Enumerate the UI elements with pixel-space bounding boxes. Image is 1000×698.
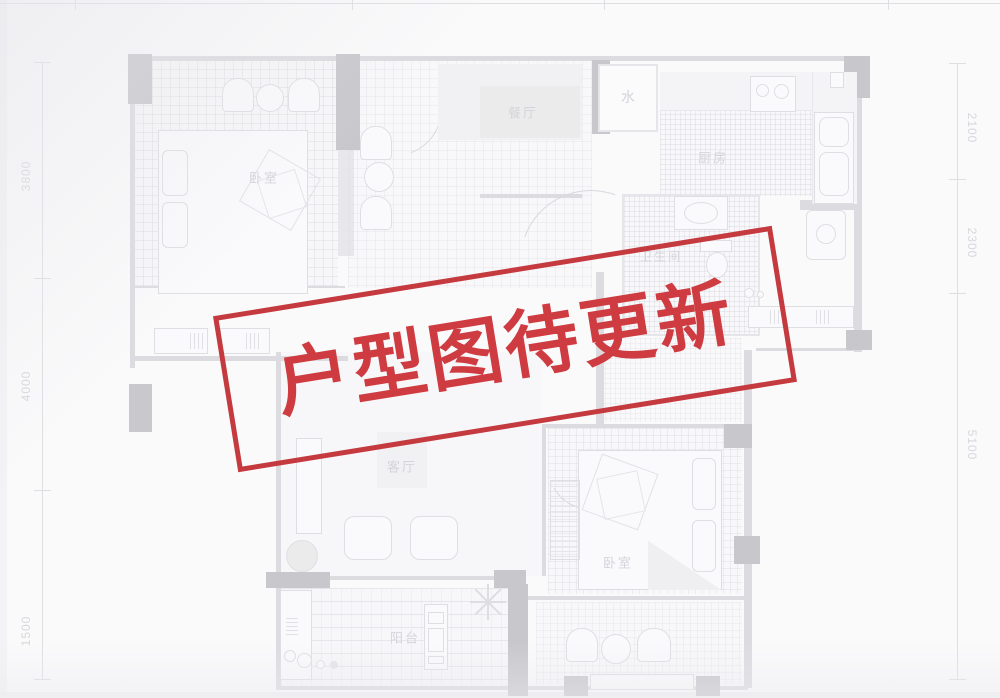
wall-column <box>508 584 528 696</box>
wall-column <box>724 424 752 448</box>
wall-segment <box>130 56 866 61</box>
plant <box>286 540 318 572</box>
dim-label-left-1500: 1500 <box>19 616 33 647</box>
dimension-tick <box>888 0 889 10</box>
dim-label-right-2100: 2100 <box>965 113 979 144</box>
chair <box>288 78 320 112</box>
sofa-chair <box>344 516 392 560</box>
cabinet-detail <box>816 310 832 324</box>
stool <box>256 84 284 112</box>
dimension-tick <box>949 293 966 294</box>
dimension-line-right <box>957 63 958 679</box>
stool <box>601 634 631 664</box>
sofa-chair <box>410 516 458 560</box>
sink-basin <box>819 117 849 147</box>
dimension-tick <box>34 490 51 491</box>
drying-rack-detail <box>428 612 444 624</box>
room-label-balcony: 阳台 <box>390 628 420 647</box>
wall-column <box>266 572 330 588</box>
blanket-corner <box>648 540 722 590</box>
dimension-tick <box>34 278 51 279</box>
cabinet-detail <box>286 618 298 638</box>
stamp-text: 户型图待更新 <box>271 276 739 423</box>
blanket-fold <box>596 470 646 520</box>
drying-rack-detail <box>428 628 444 652</box>
dimension-tick <box>949 679 966 680</box>
washer-door <box>816 224 836 244</box>
dim-label-right-5100: 5100 <box>965 430 979 461</box>
wall-segment <box>330 576 496 580</box>
stool <box>364 162 394 192</box>
chair <box>637 628 671 662</box>
sink-basin <box>819 152 849 196</box>
pillow <box>162 202 188 248</box>
kitchen-appliance <box>830 72 844 88</box>
wall-segment <box>744 350 752 688</box>
floorplan-photo: 3800 4000 1500 2100 2300 5100 <box>0 0 1000 698</box>
wall-column <box>129 384 152 432</box>
dimension-tick <box>75 0 76 10</box>
wall-column <box>128 54 152 104</box>
stove-burner <box>756 84 769 97</box>
fixture-dot <box>297 653 312 668</box>
dimension-tick <box>352 0 353 10</box>
room-label-bedroom-top: 卧室 <box>249 168 279 187</box>
desk <box>590 674 694 690</box>
wall-column <box>846 330 872 350</box>
photo-edge-left <box>0 0 7 698</box>
dimension-tick <box>34 62 51 63</box>
wall-segment <box>528 596 750 600</box>
wall-column <box>564 676 588 696</box>
dim-label-left-4000: 4000 <box>19 371 33 402</box>
drain-dot <box>330 661 338 669</box>
wardrobe <box>550 480 580 560</box>
stove-burner <box>774 84 789 99</box>
room-label-living: 客厅 <box>387 457 417 476</box>
fan-icon <box>468 582 508 622</box>
pillow <box>162 150 188 196</box>
photo-edge-bottom <box>0 692 1000 698</box>
dimension-line-top <box>0 3 1000 4</box>
wall-segment <box>542 424 546 576</box>
wall-column <box>696 676 720 696</box>
fixture-dot <box>284 650 296 662</box>
dim-label-right-2300: 2300 <box>965 228 979 259</box>
room-label-kitchen: 厨房 <box>698 148 728 167</box>
chair <box>360 196 392 230</box>
sink-bowl <box>684 202 718 224</box>
room-label-dining: 餐厅 <box>508 103 538 122</box>
dimension-tick <box>34 679 51 680</box>
chair <box>566 628 598 662</box>
wall-column <box>734 536 760 564</box>
room-label-water: 水 <box>621 87 637 107</box>
dim-label-left-3800: 3800 <box>19 161 33 192</box>
chair <box>360 126 392 160</box>
pillow <box>692 458 716 510</box>
room-label-bedroom-bottom: 卧室 <box>603 553 633 572</box>
dimension-line-left <box>42 62 43 679</box>
dimension-tick <box>604 0 605 10</box>
dimension-tick <box>949 63 966 64</box>
dresser-detail <box>190 333 204 349</box>
drying-rack-detail <box>428 656 444 664</box>
dimension-tick <box>949 179 966 180</box>
fixture-dot <box>316 660 325 669</box>
chair <box>222 78 254 112</box>
